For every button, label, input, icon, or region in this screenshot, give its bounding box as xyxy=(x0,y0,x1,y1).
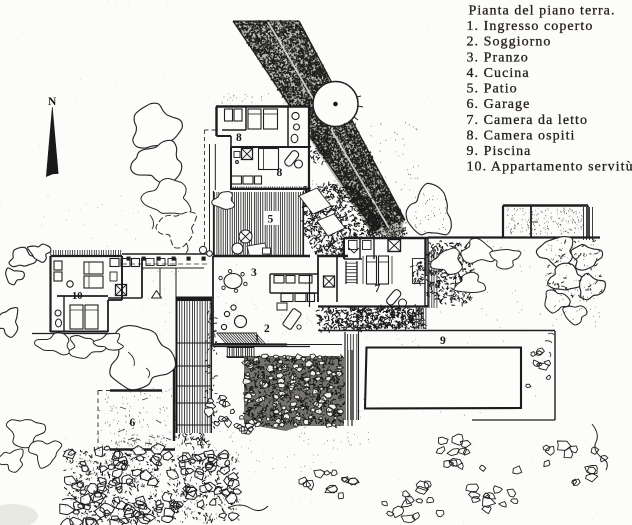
svg-text:1: 1 xyxy=(255,334,260,345)
svg-text:7: 7 xyxy=(375,283,381,295)
svg-text:8: 8 xyxy=(277,167,283,179)
svg-text:5: 5 xyxy=(268,214,274,226)
svg-text:8. Camera ospiti: 8. Camera ospiti xyxy=(467,128,576,143)
svg-text:6: 6 xyxy=(130,417,136,429)
svg-text:8: 8 xyxy=(236,132,242,144)
svg-text:1. Ingresso coperto: 1. Ingresso coperto xyxy=(467,19,594,34)
svg-text:10. Appartamento servitù: 10. Appartamento servitù xyxy=(467,160,632,175)
svg-text:Pianta del piano terra.: Pianta del piano terra. xyxy=(469,3,616,18)
svg-text:10: 10 xyxy=(72,291,83,302)
svg-text:6. Garage: 6. Garage xyxy=(467,97,531,112)
svg-text:3: 3 xyxy=(251,267,257,279)
svg-text:9: 9 xyxy=(440,335,446,347)
svg-text:2: 2 xyxy=(264,323,270,335)
svg-text:7. Camera da letto: 7. Camera da letto xyxy=(467,113,589,128)
svg-text:3. Pranzo: 3. Pranzo xyxy=(467,50,529,65)
svg-text:N: N xyxy=(48,96,57,108)
svg-text:2. Soggiorno: 2. Soggiorno xyxy=(467,35,552,50)
svg-text:4. Cucina: 4. Cucina xyxy=(467,66,530,81)
svg-text:9. Piscina: 9. Piscina xyxy=(467,144,532,159)
svg-text:5. Patio: 5. Patio xyxy=(467,82,518,97)
